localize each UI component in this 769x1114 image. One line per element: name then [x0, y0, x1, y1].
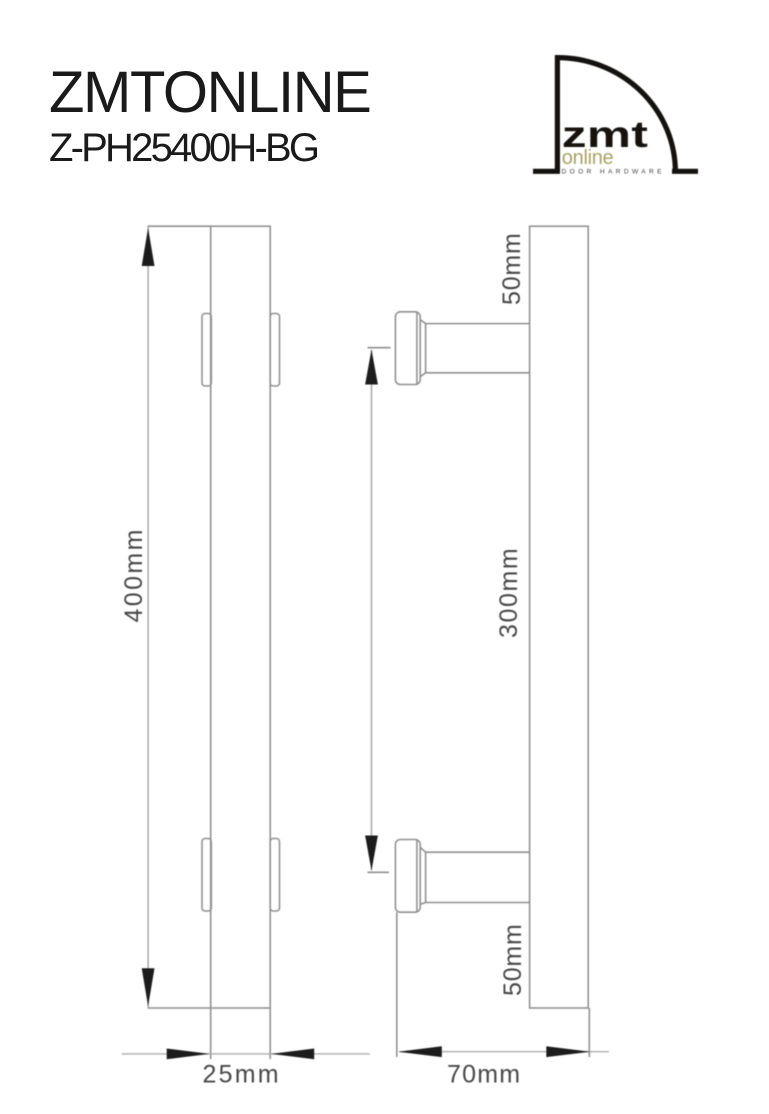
- svg-text:50mm: 50mm: [498, 232, 526, 305]
- svg-text:50mm: 50mm: [499, 923, 527, 996]
- svg-text:300mm: 300mm: [495, 547, 523, 638]
- svg-text:70mm: 70mm: [447, 1061, 521, 1089]
- svg-text:400mm: 400mm: [120, 527, 148, 622]
- svg-text:25mm: 25mm: [203, 1061, 281, 1089]
